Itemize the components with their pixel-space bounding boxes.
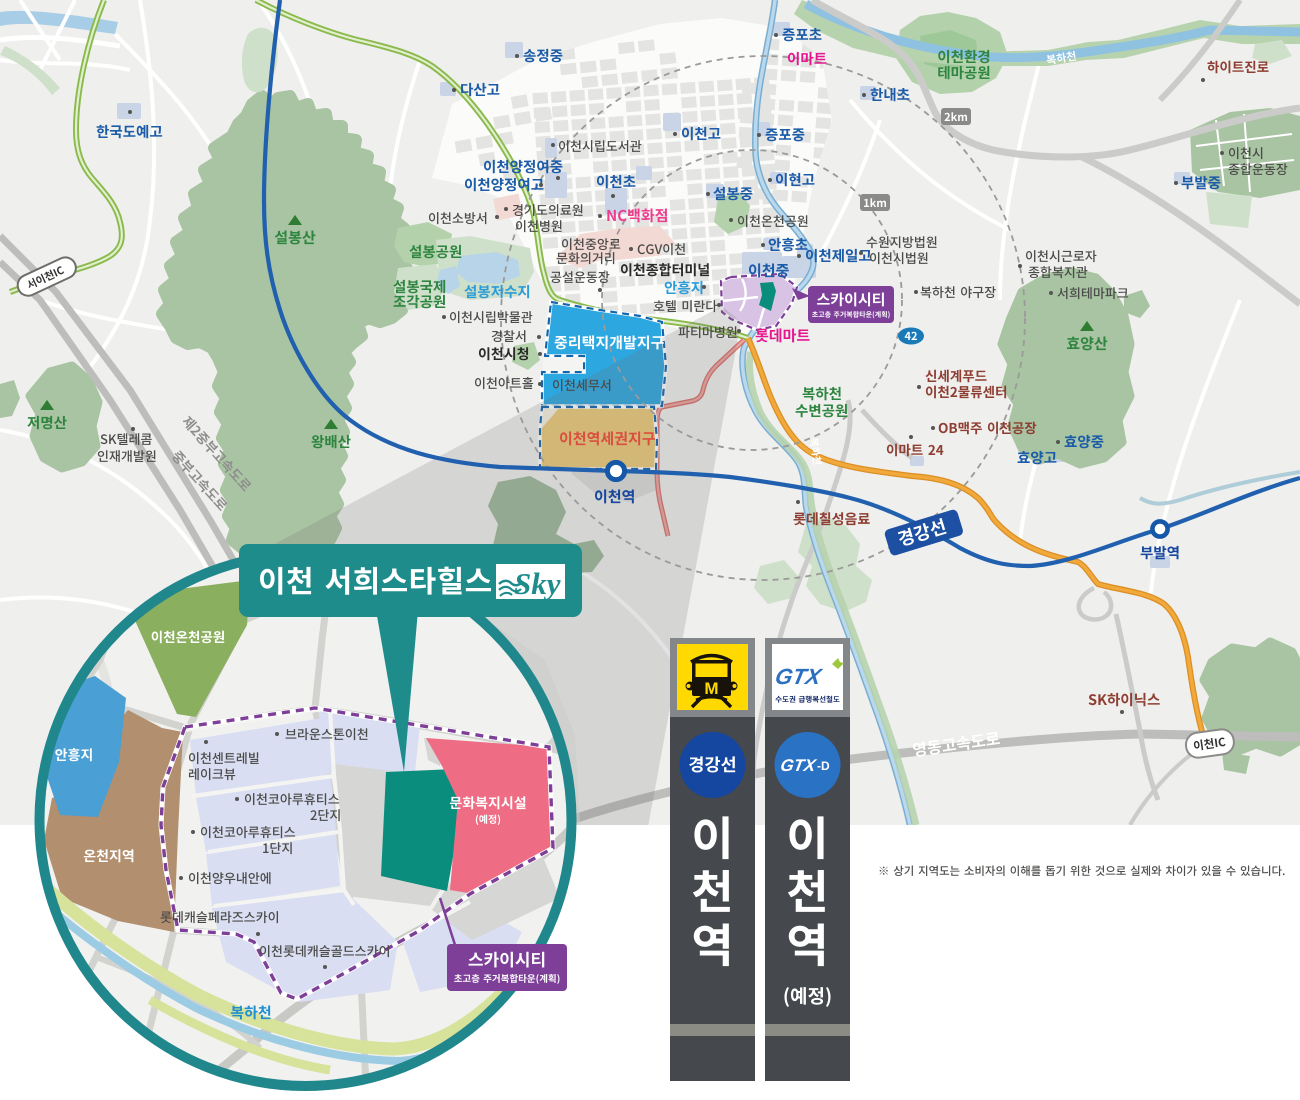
svg-text:Sky: Sky (514, 566, 561, 601)
svg-text:GTX: GTX (773, 664, 825, 689)
svg-text:M: M (704, 679, 718, 698)
svg-text:GTX: GTX (779, 755, 819, 775)
svg-text:-D: -D (817, 759, 830, 773)
